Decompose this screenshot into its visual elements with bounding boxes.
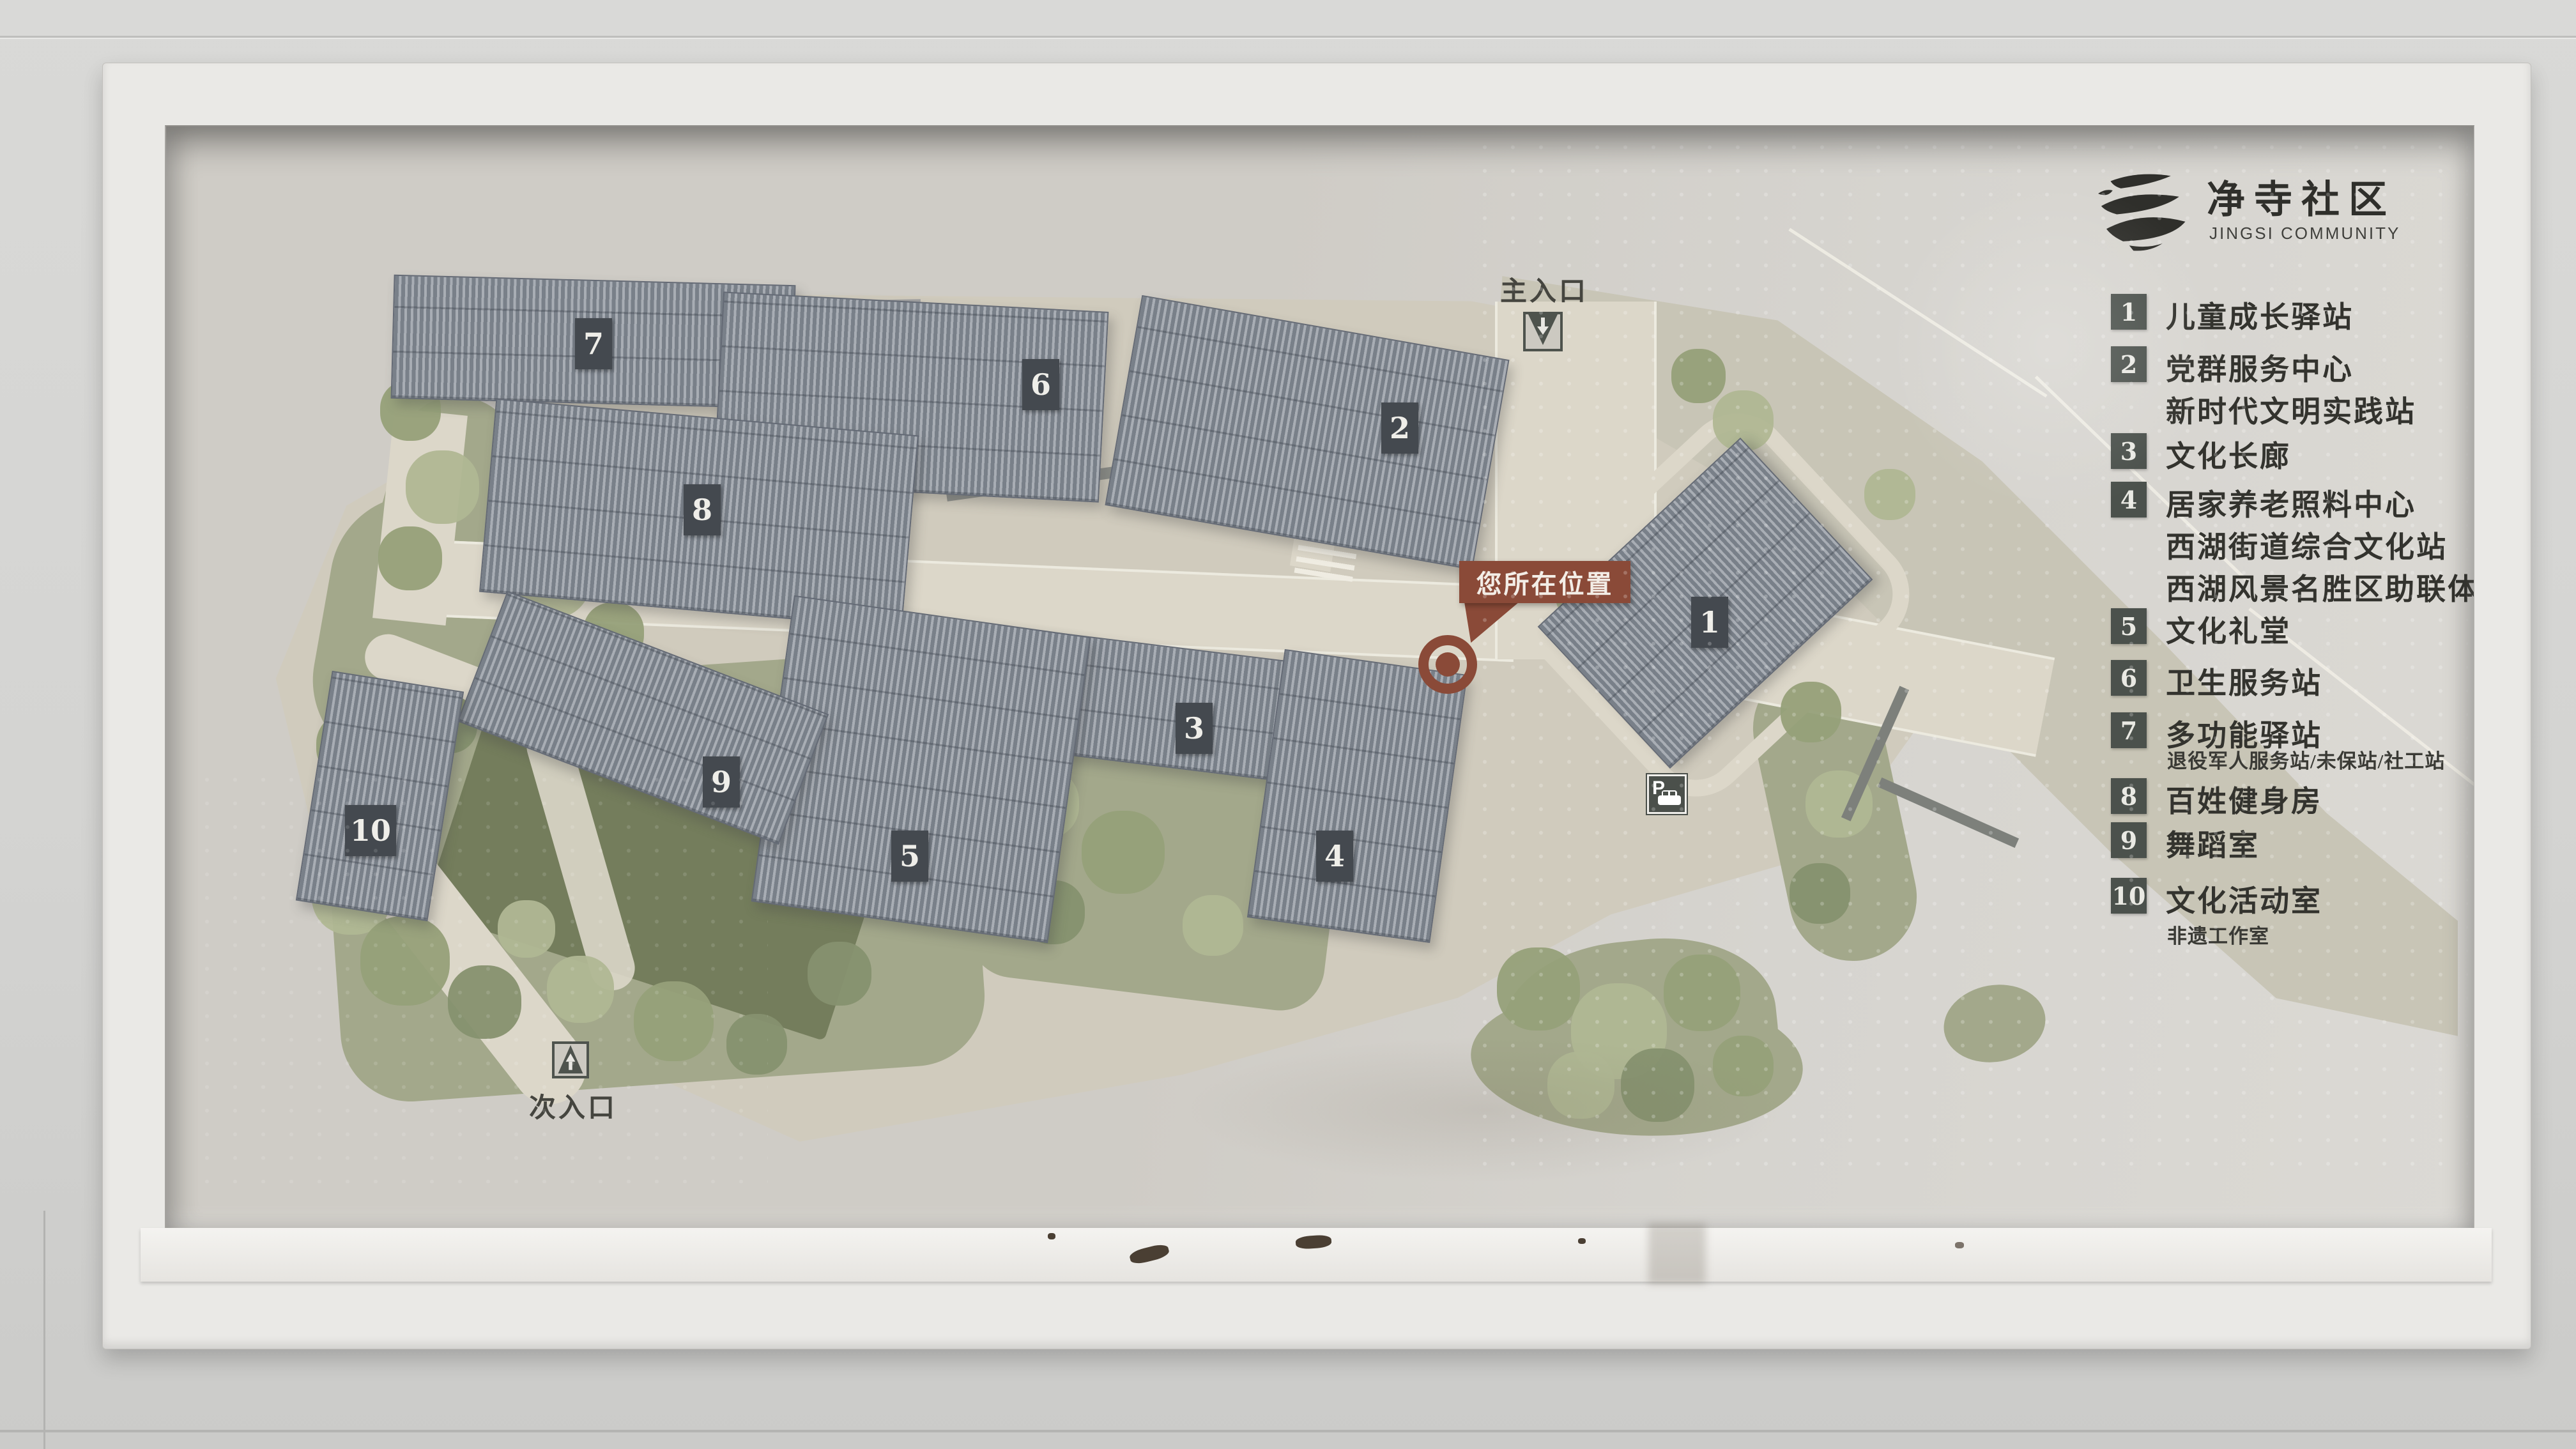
tree [1664, 954, 1740, 1031]
legend-num-3: 3 [2111, 433, 2147, 469]
legend-num-6: 6 [2111, 660, 2147, 696]
map-scene: 1 2 3 4 5 6 7 8 9 10 您所在位置 主入口 [165, 125, 2474, 1228]
building-plate-1: 1 [1691, 597, 1728, 648]
secondary-entrance-icon [552, 1041, 589, 1078]
ledge-dirt [1955, 1242, 1964, 1248]
tree [1621, 1048, 1694, 1122]
tree [406, 450, 479, 524]
ledge-dirt [1048, 1233, 1055, 1239]
legend-num-8: 8 [2111, 778, 2147, 814]
legend-label-2b: 新时代文明实践站 [2166, 388, 2416, 424]
secondary-entrance-label: 次入口 [529, 1086, 617, 1125]
parking-icon: P [1647, 774, 1687, 814]
legend-label-5: 文化礼堂 [2166, 608, 2291, 644]
legend-label-1: 儿童成长驿站 [2166, 294, 2354, 330]
tree [1790, 863, 1850, 924]
car-glyph [1658, 795, 1681, 805]
tree [726, 1014, 787, 1075]
building-plate-5: 5 [891, 831, 928, 882]
legend-label-4c: 西湖风景名胜区助联体 [2166, 566, 2474, 602]
legend-num-5: 5 [2111, 608, 2147, 644]
green-area [1938, 977, 2051, 1070]
legend-label-10: 文化活动室 [2166, 878, 2322, 914]
main-entrance-label: 主入口 [1500, 270, 1588, 309]
community-name-en: JINGSI COMMUNITY [2209, 224, 2400, 243]
legend-label-4: 居家养老照料中心 [2166, 482, 2416, 517]
tree [1183, 895, 1243, 956]
you-are-here-dot-icon [1436, 652, 1460, 677]
tree [634, 981, 714, 1061]
main-entrance-icon [1523, 312, 1563, 351]
building-plate-7: 7 [575, 318, 612, 369]
legend-label-7: 多功能驿站 [2166, 712, 2322, 748]
tree [498, 900, 555, 958]
wall-seam-bottom [0, 1430, 2576, 1432]
building-plate-8: 8 [684, 484, 721, 535]
legend-label-8: 百姓健身房 [2166, 778, 2322, 814]
tree [1082, 811, 1165, 894]
tree [378, 526, 442, 590]
frame-stain [1648, 1223, 1706, 1284]
community-name: 净寺社区 [2207, 169, 2396, 224]
wall-seam-left [43, 1211, 45, 1449]
building-plate-2: 2 [1381, 402, 1418, 454]
legend-num-1: 1 [2111, 294, 2147, 330]
tree [1713, 1036, 1774, 1096]
legend-label-3: 文化长廊 [2166, 433, 2291, 469]
legend-sub-10: 非遗工作室 [2167, 924, 2269, 949]
building-plate-3: 3 [1176, 703, 1213, 754]
building-plate-10: 10 [345, 805, 396, 856]
legend-num-4: 4 [2111, 482, 2147, 517]
tree [1671, 349, 1726, 403]
you-are-here-banner: 您所在位置 [1459, 561, 1630, 603]
legend-label-9: 舞蹈室 [2166, 822, 2260, 858]
legend-num-7: 7 [2111, 712, 2147, 748]
wall-seam-top-highlight [0, 38, 2576, 39]
community-logo-mark-icon [2085, 169, 2194, 255]
legend-label-6: 卫生服务站 [2166, 660, 2322, 696]
legend-label-4b: 西湖街道综合文化站 [2166, 524, 2448, 560]
tree [1781, 682, 1841, 742]
tree [1864, 469, 1915, 520]
tree [547, 956, 614, 1023]
legend-num-2: 2 [2111, 346, 2147, 382]
tree [360, 916, 450, 1006]
legend-num-10: 10 [2111, 878, 2147, 914]
building-4 [1247, 649, 1468, 943]
legend-sub-7: 退役军人服务站/未保站/社工站 [2167, 749, 2445, 774]
tree [448, 965, 521, 1039]
tree [808, 942, 871, 1006]
legend-label-2: 党群服务中心 [2166, 346, 2354, 382]
tree [1547, 1052, 1614, 1119]
tree [1497, 947, 1580, 1031]
legend-num-9: 9 [2111, 822, 2147, 858]
sign-panel: 1 2 3 4 5 6 7 8 9 10 您所在位置 主入口 [165, 125, 2474, 1228]
building-plate-6: 6 [1022, 359, 1059, 410]
ledge-dirt [1578, 1238, 1586, 1244]
building-plate-4: 4 [1316, 831, 1353, 882]
building-plate-9: 9 [703, 756, 740, 808]
